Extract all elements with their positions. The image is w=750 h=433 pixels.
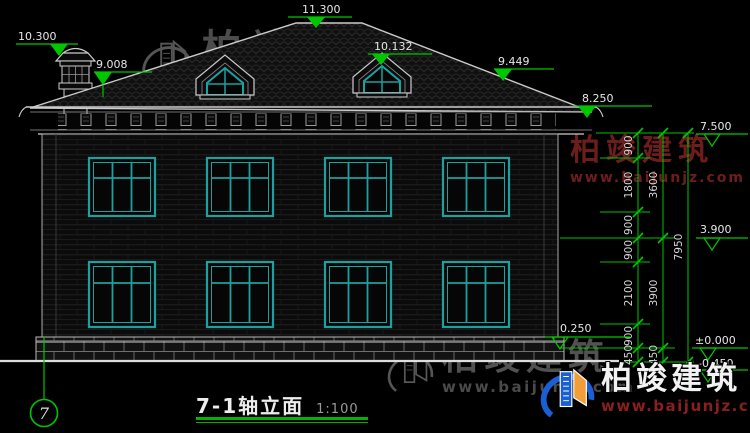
window-1f-1 xyxy=(89,262,155,327)
axis-number: 7 xyxy=(39,404,50,423)
level-chimney-top-value: 10.300 xyxy=(18,30,57,43)
dim-inner-3: 900 xyxy=(623,215,635,235)
level-ground-value: -0.450 xyxy=(698,357,733,370)
dim-inner-1: 900 xyxy=(623,135,635,155)
drawing-title: 7-1轴立面 xyxy=(196,394,304,418)
dim-inner-6: 900 xyxy=(623,326,635,346)
level-roof-left-value: 9.008 xyxy=(96,58,128,71)
dim-mid-2: 3900 xyxy=(648,280,660,307)
window-2f-3 xyxy=(325,158,391,216)
window-2f-4 xyxy=(443,158,509,216)
elevation-level-markers: 7.500 3.900 0.250 ±0.000 -0.450 xyxy=(545,120,748,382)
level-marker-roof-right: 9.449 xyxy=(494,55,554,81)
dim-mid-3: 450 xyxy=(648,345,660,365)
drawing-title-block: 7-1轴立面1:100 xyxy=(196,390,426,419)
plinth xyxy=(36,337,564,361)
level-marker-eave: 8.250 xyxy=(574,92,652,118)
level-eave-value: 8.250 xyxy=(582,92,614,105)
level-floor2-value: 3.900 xyxy=(700,223,732,236)
window-1f-2 xyxy=(207,262,273,327)
level-marker-top: 7.500 xyxy=(696,120,748,146)
window-1f-4 xyxy=(443,262,509,327)
level-roof-right-value: 9.449 xyxy=(498,55,530,68)
cad-elevation-svg: 900 1800 900 900 2100 900 450 3600 3900 … xyxy=(0,0,750,433)
elevation-drawing-canvas: 柏竣建筑 www.baijunjz.com 柏竣建筑 www.baijunjz.… xyxy=(0,0,750,433)
dim-inner-7: 450 xyxy=(623,345,635,365)
level-marker-floor2: 3.900 xyxy=(696,223,748,250)
level-ridge-value: 11.300 xyxy=(302,3,341,16)
dim-inner-2: 1800 xyxy=(623,172,635,199)
level-marker-chimney-top: 10.300 xyxy=(16,30,78,56)
dim-total: 7950 xyxy=(673,234,685,261)
level-plinth-value: 0.250 xyxy=(560,322,592,335)
dim-inner-5: 2100 xyxy=(623,280,635,307)
level-zero-value: ±0.000 xyxy=(695,334,736,347)
title-underline-thick xyxy=(196,417,368,420)
dimension-values: 900 1800 900 900 2100 900 450 3600 3900 … xyxy=(623,135,685,365)
window-2f-1 xyxy=(89,158,155,216)
level-dormer-top-value: 10.132 xyxy=(374,40,413,53)
title-underline-thin xyxy=(196,422,368,423)
window-1f-3 xyxy=(325,262,391,327)
window-2f-2 xyxy=(207,158,273,216)
level-top-value: 7.500 xyxy=(700,120,732,133)
dim-inner-4: 900 xyxy=(623,240,635,260)
level-marker-ground: -0.450 xyxy=(694,357,748,382)
dim-mid-1: 3600 xyxy=(648,172,660,199)
drawing-scale: 1:100 xyxy=(316,402,358,417)
